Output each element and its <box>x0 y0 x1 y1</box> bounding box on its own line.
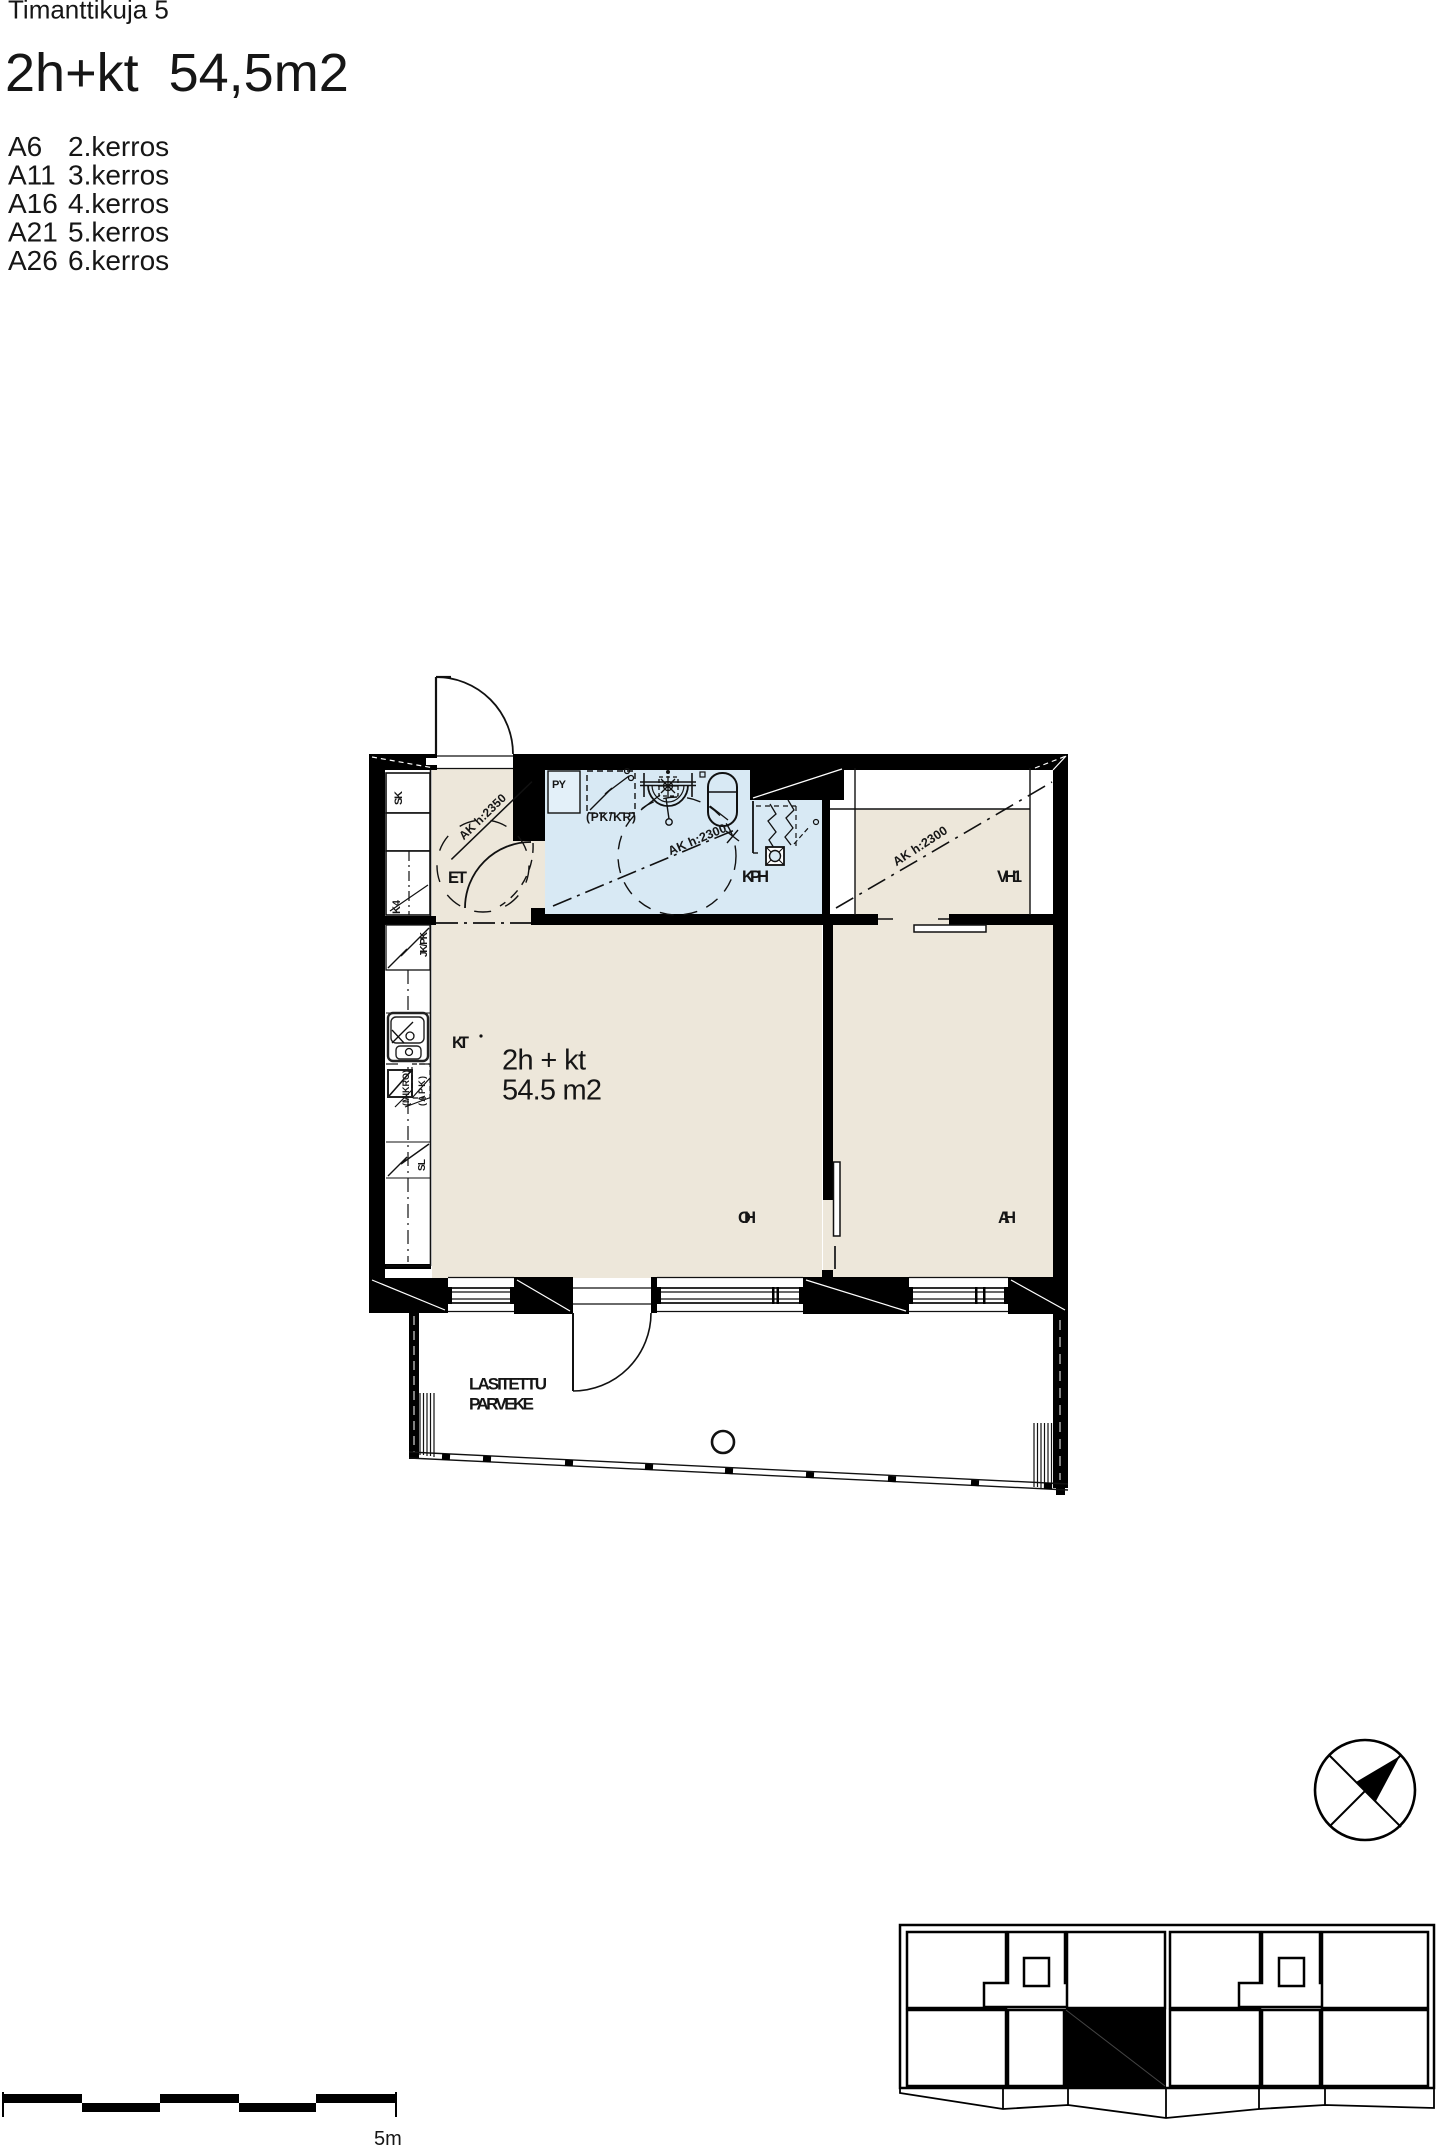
svg-text:54.5 m2: 54.5 m2 <box>502 1075 602 1107</box>
svg-text:VH1: VH1 <box>997 868 1022 886</box>
svg-text:A11: A11 <box>8 160 56 191</box>
svg-text:PY: PY <box>552 779 567 791</box>
svg-text:SL: SL <box>417 1159 428 1171</box>
svg-text:A6: A6 <box>8 131 42 162</box>
svg-text:5m: 5m <box>374 2128 402 2145</box>
svg-text:(MIKRO): (MIKRO) <box>401 1070 411 1106</box>
svg-text:LASITETTU: LASITETTU <box>469 1375 547 1394</box>
svg-text:3.kerros: 3.kerros <box>68 160 169 191</box>
svg-text:KT: KT <box>452 1034 469 1052</box>
svg-text:SK: SK <box>393 791 405 805</box>
svg-text:6.kerros: 6.kerros <box>68 245 169 276</box>
svg-text:A26: A26 <box>8 245 58 276</box>
svg-text:JK/PK: JK/PK <box>419 931 430 957</box>
svg-text:5.kerros: 5.kerros <box>68 217 169 248</box>
svg-text:(APK): (APK) <box>417 1076 427 1106</box>
svg-text:PARVEKE: PARVEKE <box>469 1395 534 1414</box>
svg-text:OH: OH <box>738 1209 756 1227</box>
svg-text:KPH: KPH <box>742 868 769 886</box>
svg-text:2.kerros: 2.kerros <box>68 131 169 162</box>
svg-text:Timanttikuja 5: Timanttikuja 5 <box>8 0 169 25</box>
svg-text:ET: ET <box>448 869 467 887</box>
svg-text:A21: A21 <box>8 217 58 248</box>
svg-text:2h + kt: 2h + kt <box>502 1045 586 1077</box>
svg-text:A16: A16 <box>8 188 58 219</box>
svg-text:2h+kt 54,5m2: 2h+kt 54,5m2 <box>5 43 349 103</box>
svg-text:4.kerros: 4.kerros <box>68 188 169 219</box>
svg-text:K4: K4 <box>391 899 403 914</box>
svg-text:AH: AH <box>998 1209 1016 1227</box>
